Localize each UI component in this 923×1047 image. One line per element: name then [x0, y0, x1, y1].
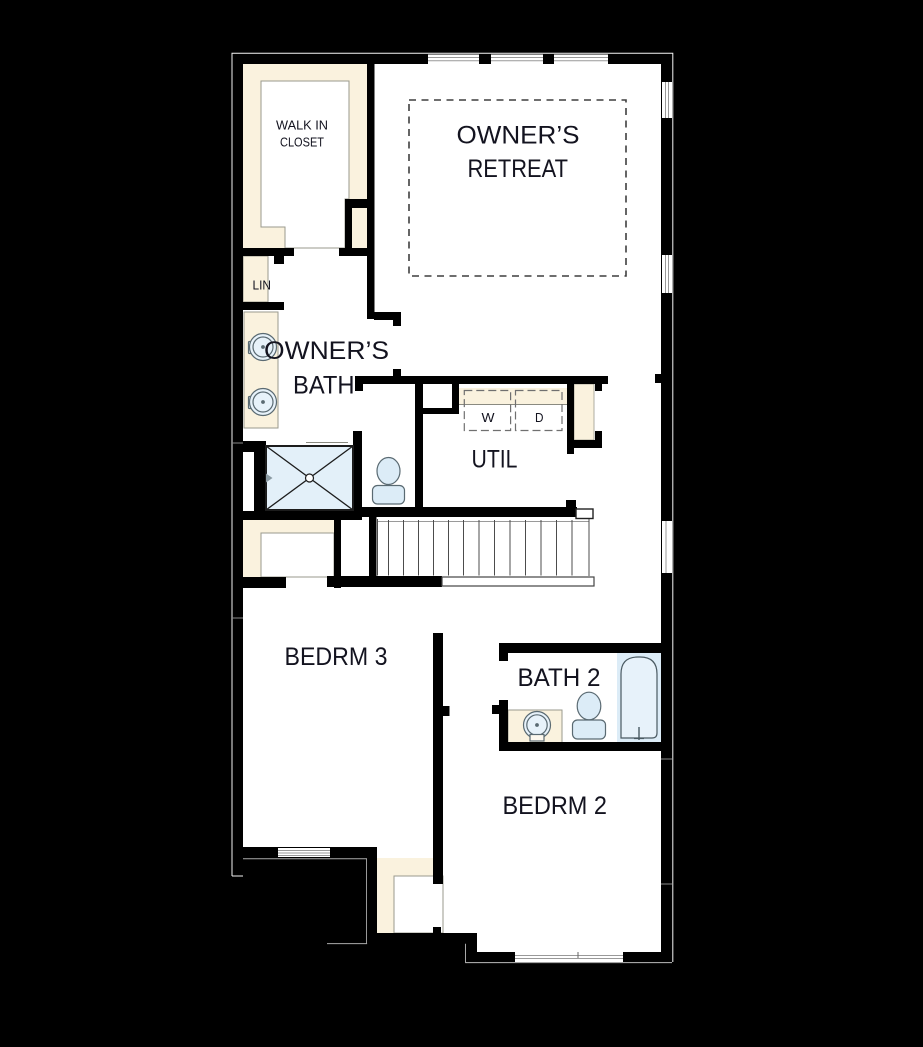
svg-text:BEDRM 2: BEDRM 2 — [503, 792, 608, 820]
svg-text:OWNER’S: OWNER’S — [457, 122, 580, 150]
svg-text:W: W — [482, 411, 495, 425]
svg-text:BEDRM 3: BEDRM 3 — [285, 643, 388, 671]
svg-text:D: D — [535, 411, 544, 425]
svg-text:OWNER’S: OWNER’S — [264, 337, 389, 365]
svg-text:LIN: LIN — [253, 278, 272, 293]
svg-text:WALK IN: WALK IN — [276, 119, 328, 133]
svg-text:BATH 2: BATH 2 — [518, 664, 601, 692]
svg-text:CLOSET: CLOSET — [280, 136, 324, 150]
svg-text:RETREAT: RETREAT — [468, 155, 569, 183]
svg-text:UTIL: UTIL — [472, 446, 518, 474]
svg-text:BATH: BATH — [293, 372, 355, 400]
